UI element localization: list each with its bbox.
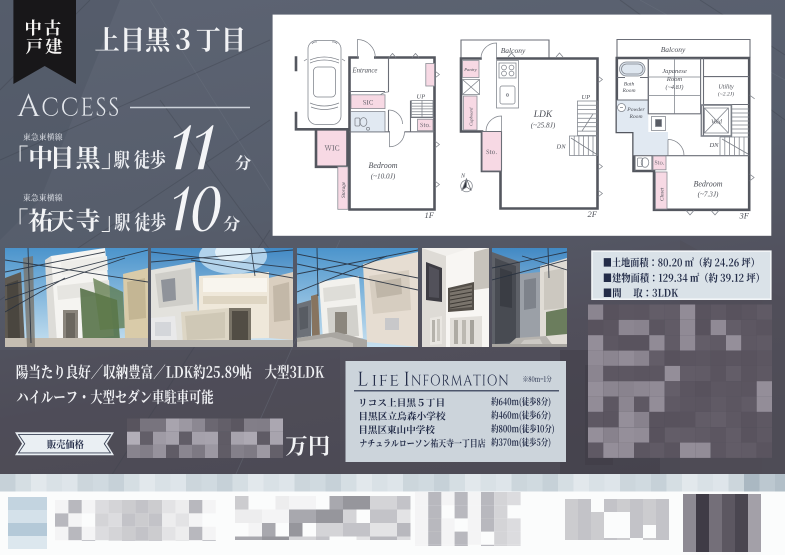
svg-text:Closet: Closet [660,187,666,201]
svg-text:Bath: Bath [624,82,635,88]
svg-text:3F: 3F [739,211,750,221]
svg-text:(~10.0J): (~10.0J) [371,173,396,181]
svg-text:DN: DN [708,142,719,149]
svg-text:1F: 1F [425,210,435,220]
svg-text:LDK: LDK [533,110,553,120]
svg-text:UP: UP [582,94,591,101]
svg-text:2F: 2F [588,209,598,219]
svg-text:Utility: Utility [718,85,734,91]
svg-text:Bedroom: Bedroom [693,180,722,189]
svg-text:DN: DN [556,144,567,151]
svg-text:Void: Void [711,120,723,126]
svg-text:Cupboard: Cupboard [469,107,474,126]
svg-text:Pantry: Pantry [463,67,477,72]
svg-text:Powder: Powder [626,107,645,113]
svg-text:(~4.8J): (~4.8J) [666,84,684,91]
svg-text:Entrance: Entrance [352,68,378,75]
svg-text:Room: Room [666,76,683,83]
svg-text:Balcony: Balcony [501,46,526,55]
svg-text:(~25.8J): (~25.8J) [531,122,556,130]
svg-text:Storage: Storage [341,181,347,198]
svg-text:Japanese: Japanese [662,68,687,75]
svg-text:(~2.2J): (~2.2J) [718,91,734,98]
svg-text:Bedroom: Bedroom [368,161,397,170]
svg-text:Room: Room [628,114,642,120]
svg-text:Room: Room [621,88,635,94]
svg-text:UP: UP [417,94,426,101]
svg-text:(~7.3J): (~7.3J) [698,191,719,199]
svg-text:Balcony: Balcony [661,45,686,54]
